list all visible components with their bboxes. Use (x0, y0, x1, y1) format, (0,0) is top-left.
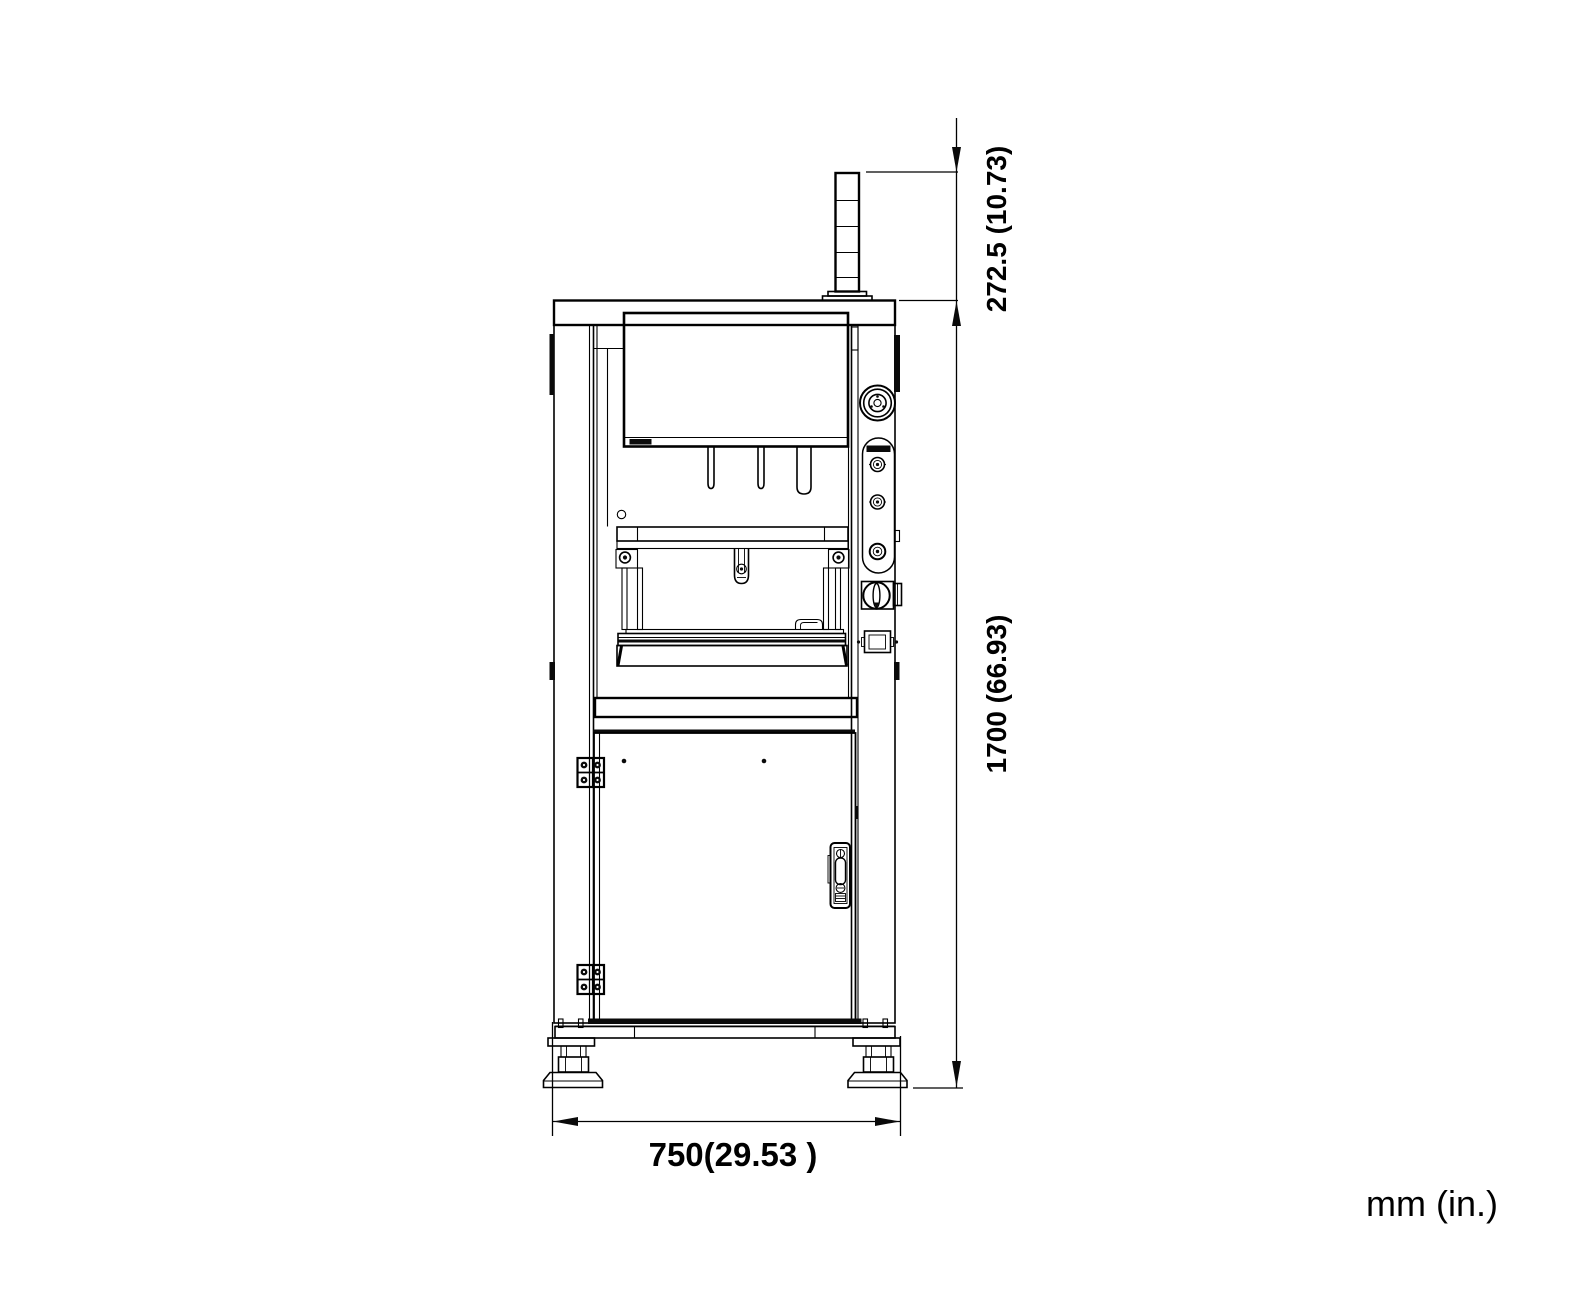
arrowhead (553, 1117, 578, 1126)
guide-rod (622, 568, 627, 630)
press-beam (617, 527, 848, 541)
table-bump (796, 620, 823, 630)
estop-knob (860, 386, 895, 421)
center-clevis (735, 549, 749, 584)
right-side-tab-upper (894, 335, 900, 392)
door-hole (622, 759, 627, 764)
press-head-cover (624, 313, 848, 447)
table-base-block (617, 646, 847, 667)
dim-label-machine-height: 1700 (66.93) (981, 615, 1012, 774)
press-rod-3 (797, 447, 811, 495)
machine-base (544, 1019, 908, 1088)
handle-grip (836, 858, 846, 885)
left-side-tab-upper (550, 334, 555, 395)
leveling-foot-right (848, 1038, 907, 1088)
panel-button-3 (870, 544, 886, 560)
guide-rod (836, 568, 841, 630)
door-sill (588, 1019, 862, 1025)
guide-rod (824, 568, 829, 630)
left-side-tab-mid (550, 662, 556, 680)
technical-drawing-page: 272.5 (10.73) 1700 (66.93) 750(29.53 ) m… (0, 0, 1576, 1300)
guide-rod (638, 568, 643, 630)
base-rail (555, 1027, 895, 1039)
door-latch-mark (855, 806, 858, 819)
right-side-tab-mid (894, 662, 900, 680)
arrowhead (952, 1061, 961, 1087)
press-machine-front-view-drawing: 272.5 (10.73) 1700 (66.93) 750(29.53 ) m… (0, 0, 1576, 1300)
power-connector (857, 631, 898, 653)
left-column (554, 325, 594, 1023)
dim-label-base-width: 750(29.53 ) (649, 1136, 818, 1173)
frame-crossmember (595, 698, 857, 717)
arrowhead (952, 301, 961, 326)
panel-button-1 (869, 458, 886, 472)
press-rod-2 (758, 447, 764, 489)
door-hole (762, 759, 767, 764)
lower-cabinet (578, 698, 862, 1024)
arrowhead (875, 1117, 900, 1126)
door-handle (828, 843, 850, 908)
panel-button-2 (869, 495, 886, 509)
press-head (624, 313, 848, 494)
press-rod-1 (708, 447, 714, 489)
units-label: mm (in.) (1366, 1183, 1498, 1224)
main-disconnect-switch (862, 582, 894, 610)
panel-hole (617, 510, 625, 518)
press-head-label (630, 439, 652, 445)
signal-tower (823, 173, 873, 301)
cabinet-door (594, 733, 856, 1021)
arrowhead (952, 147, 961, 172)
platen-assembly (616, 527, 849, 630)
work-table (617, 620, 847, 667)
panel-label (867, 446, 891, 453)
dim-label-tower-height: 272.5 (10.73) (981, 146, 1012, 313)
